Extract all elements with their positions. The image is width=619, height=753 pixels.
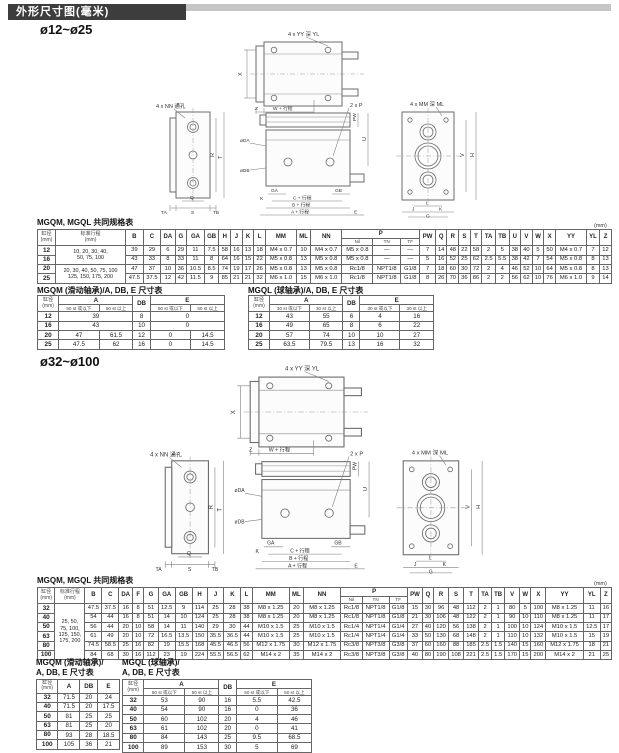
column-header: F — [133, 588, 144, 604]
table-cell: G1/4 — [389, 632, 407, 641]
table-cell: 0 — [150, 321, 224, 330]
table-cell: 10, 20, 30, 40, 50, 75, 100 — [56, 246, 126, 265]
table-cell: 2 — [482, 246, 496, 255]
dim-pw-label: PW — [352, 113, 358, 121]
table-cell: 124 — [192, 613, 207, 622]
table-cell: 48 — [447, 246, 459, 255]
table-cell: M10 x 1.5 — [546, 622, 583, 631]
table-cell: 42.5 — [277, 696, 311, 705]
dim-s-label: S — [188, 567, 192, 573]
table-cell: 10 — [133, 632, 144, 641]
table-cell: 11.5 — [187, 274, 205, 283]
column-header: 缸径 (mm) — [38, 230, 56, 246]
table-cell: 21 — [231, 274, 243, 283]
table-cell: 16 — [600, 604, 611, 613]
table-cell: 17 — [600, 622, 611, 631]
column-header: TB — [495, 230, 509, 246]
table-cell: 50 — [422, 632, 433, 641]
mm-holes-label: 4 x MM 深 ML — [412, 448, 449, 456]
dim-a-stroke-label: A + 行程 — [291, 209, 309, 216]
table-cell: M14 x 2 — [252, 650, 289, 659]
bore-range-small: ø12~ø25 — [40, 22, 92, 37]
table-cell: 25 — [289, 632, 303, 641]
table-cell: 5 — [495, 246, 509, 255]
table-cell: 9.5 — [236, 733, 277, 742]
table-cell: 8 — [586, 255, 599, 264]
table-cell: 18 — [583, 641, 600, 650]
table-cell: 38 — [509, 246, 521, 255]
dim-h-label: H — [476, 505, 482, 509]
table-cell: 16 — [435, 255, 447, 264]
dim-ga-label: GA — [267, 541, 275, 547]
table-cell: 13 — [296, 264, 310, 273]
dim-k-label: K — [256, 549, 260, 555]
ports-2xp-label: 2 x P — [350, 451, 363, 457]
table-cell: 6 — [161, 246, 175, 255]
table-cell: 40 — [521, 246, 533, 255]
table-cell: 32 — [123, 696, 144, 705]
table-cell: M4 x 0.7 — [555, 246, 586, 255]
table-cell: 52 — [521, 264, 533, 273]
end-view-drawing-large: 4 x MM 深 ML V H L J K G — [384, 448, 496, 574]
table-cell: 25 — [80, 721, 97, 730]
column-header: Q — [435, 230, 447, 246]
table-cell: 57 — [269, 331, 309, 340]
column-header: X — [544, 230, 556, 246]
table-cell: 100 — [123, 743, 144, 752]
column-header: E — [150, 296, 224, 305]
column-header: GA — [187, 230, 205, 246]
table-cell: M5 x 0.8 — [265, 264, 296, 273]
table-cell: 5 — [420, 255, 436, 264]
table-cell: 26 — [254, 264, 266, 273]
table-cell: 44 — [102, 622, 119, 631]
column-header: V — [521, 230, 533, 246]
table-cell: NPT1/8 — [373, 274, 401, 283]
column-header: R — [447, 230, 459, 246]
table-cell: 16 — [360, 340, 400, 349]
table-cell: 24 — [97, 693, 119, 702]
column-header: P — [341, 588, 408, 597]
dim-b-stroke-label: B + 行程 — [292, 202, 310, 209]
table-cell: 46 — [277, 715, 311, 724]
table-cell: 17 — [242, 264, 254, 273]
table-cell: 96 — [434, 604, 449, 613]
table-cell: 61.5 — [99, 331, 133, 340]
table-cell: 16 — [119, 604, 133, 613]
table-cell: 74 — [219, 264, 231, 273]
table-cell: 81 — [58, 721, 80, 730]
table-cell: 20, 30, 40, 50, 75, 100 125, 150, 175, 2… — [56, 264, 126, 283]
table-cell: 20 — [289, 604, 303, 613]
column-header: DB — [219, 680, 236, 696]
dim-g-label: G — [429, 569, 433, 575]
table-cell: 72 — [144, 632, 158, 641]
nn-holes-label: 4 x NN 通孔 — [156, 102, 186, 110]
table-cell: 160 — [434, 641, 449, 650]
table-cell: 13 — [296, 255, 310, 264]
table-cell: Rc1/8 — [342, 274, 373, 283]
table-cell: 15 — [583, 632, 600, 641]
table-cell: 16 — [133, 340, 150, 349]
table-cell: 170 — [505, 650, 520, 659]
table-cell: 1 — [492, 622, 505, 631]
table-cell: 30 — [289, 641, 303, 650]
column-header: ML — [296, 230, 310, 246]
table-cell: Rc1/8 — [341, 613, 362, 622]
table-cell: M6 x 1.0 — [265, 274, 296, 283]
column-header: 缸径 (mm) — [123, 680, 144, 696]
column-header: A — [58, 680, 80, 694]
dim-k-label: K — [443, 562, 447, 568]
column-header: 50 st 或以下 — [150, 305, 190, 312]
column-header: E — [360, 296, 434, 305]
column-header: E — [236, 680, 311, 689]
table-cell: NPT3/8 — [362, 650, 389, 659]
table-cell: 40 — [422, 622, 433, 631]
column-header: DA — [119, 588, 133, 604]
nn-holes-label: 4 x NN 通孔 — [150, 450, 182, 458]
table-cell: 5.5 — [236, 696, 277, 705]
column-header: NN — [303, 588, 340, 604]
column-header: S — [449, 588, 464, 604]
table-cell: 47 — [59, 331, 99, 340]
table-cell: 21 — [583, 650, 600, 659]
column-header: A — [144, 680, 219, 689]
table-cell: 56 — [449, 622, 464, 631]
column-header: DB — [133, 296, 150, 312]
table-cell: 80 — [123, 733, 144, 742]
dim-j-label: J — [414, 562, 417, 568]
table-cell: 32 — [37, 693, 58, 702]
column-header: TA — [482, 230, 496, 246]
table-cell: 160 — [531, 641, 546, 650]
table-cell: 11 — [187, 255, 205, 264]
table-cell: M14 x 2 — [546, 650, 583, 659]
table-cell: 38 — [241, 613, 252, 622]
table-cell: 58.5 — [102, 641, 119, 650]
table-cell: 88 — [449, 641, 464, 650]
table-cell: 43 — [126, 255, 144, 264]
table-cell: 20 — [119, 622, 133, 631]
table-cell: 20 — [97, 721, 119, 730]
table-cell: 15 — [296, 274, 310, 283]
table-cell: 20 — [119, 632, 133, 641]
table-cell: 22 — [459, 246, 471, 255]
table-cell: 90 — [185, 705, 219, 714]
table-cell: 20 — [38, 264, 56, 273]
table-cell: 17.5 — [97, 702, 119, 711]
ports-2xp-label: 2 x P — [350, 103, 363, 109]
table-cell: 12 — [600, 246, 612, 255]
column-header: 缸径 (mm) — [38, 296, 59, 312]
table-cell: M12 x 1.75 — [303, 641, 340, 650]
table-cell: 13 — [600, 264, 612, 273]
common-spec-table-small: 缸径 (mm)标准行程 (mm)BCDAGGAGBHJKLMMMLNNPPWQR… — [37, 229, 612, 284]
column-header: YL — [583, 588, 600, 604]
dim-g-label: G — [426, 214, 430, 220]
column-header: 50 st 以上 — [277, 689, 311, 696]
table-cell: 1.5 — [492, 641, 505, 650]
common-table-small-title: MGQM, MGQL 共同规格表 — [37, 218, 133, 228]
table-cell: 47.5 — [126, 274, 144, 283]
dim-pw-label: PW — [352, 462, 358, 470]
table-cell: 5.5 — [495, 255, 509, 264]
table-cell: 35.5 — [207, 632, 224, 641]
table-cell: 8 — [343, 321, 360, 330]
table-cell: 108 — [449, 650, 464, 659]
table-cell: 8 — [133, 312, 150, 321]
table-cell: 16 — [38, 321, 59, 330]
table-cell: 37 — [407, 641, 422, 650]
table-cell: 10 — [532, 274, 544, 283]
dim-s-label: S — [191, 210, 194, 216]
table-cell: 10 — [133, 321, 150, 330]
dim-ta-label: TA — [156, 567, 163, 573]
table-cell: 16 — [133, 641, 144, 650]
table-cell: 64 — [544, 264, 556, 273]
table-cell: 10 — [520, 632, 531, 641]
dim-h-label: H — [470, 153, 476, 157]
table-cell: 148 — [464, 632, 479, 641]
table-cell: 20 — [38, 331, 59, 340]
table-cell: 18 — [435, 264, 447, 273]
table-cell: 0 — [150, 331, 190, 340]
table-cell: 54 — [85, 613, 102, 622]
table-cell: 20 — [219, 715, 236, 724]
table-cell: 18.5 — [97, 730, 119, 739]
table-cell: 12 — [249, 312, 270, 321]
table-cell: 81 — [58, 712, 80, 721]
table-cell: M5 x 0.8 — [311, 264, 342, 273]
yy-holes-label: 4 x YY 深 YL — [288, 30, 319, 38]
table-cell: 60 — [422, 641, 433, 650]
table-cell: — — [401, 255, 420, 264]
bore-range-large: ø32~ø100 — [40, 354, 100, 369]
table-cell: 14 — [435, 246, 447, 255]
table-cell: 1 — [492, 613, 505, 622]
table-cell: 18 — [254, 246, 266, 255]
table-cell: G1/8 — [389, 613, 407, 622]
table-cell: M5 x 0.8 — [555, 255, 586, 264]
common-table-large-title: MGQM, MGQL 共同规格表 — [37, 576, 133, 586]
table-cell: M4 x 0.7 — [311, 246, 342, 255]
column-header: B — [85, 588, 102, 604]
table-cell: M10 x 1.5 — [303, 632, 340, 641]
column-header: 50 st 以上 — [185, 689, 219, 696]
table-cell: M10 x 1.5 — [546, 632, 583, 641]
column-header: B — [126, 230, 144, 246]
side-view-drawing-large: 4 x NN 通孔 R T Q TA S TB — [150, 450, 228, 571]
mgqm-small-table: 缸径 (mm)ADBE50 st 或以下50 st 以上50 st 或以下50 … — [37, 295, 225, 350]
dim-ta-label: TA — [161, 210, 168, 216]
table-cell: 0 — [150, 340, 190, 349]
table-cell: G1/8 — [401, 274, 420, 283]
table-cell: 36.5 — [224, 632, 241, 641]
table-cell: 51 — [144, 604, 158, 613]
column-header: V — [505, 588, 520, 604]
table-cell: 21 — [600, 641, 611, 650]
dim-t-label: T — [217, 508, 223, 512]
table-cell: 42 — [175, 274, 187, 283]
table-cell: 19 — [600, 632, 611, 641]
table-cell: 11 — [187, 246, 205, 255]
title-band-extension — [186, 4, 611, 11]
table-cell: 84 — [144, 733, 185, 742]
table-cell: 33 — [175, 255, 187, 264]
table-cell: 63 — [38, 632, 55, 641]
table-cell: 10 — [520, 622, 531, 631]
column-header: G — [144, 588, 158, 604]
table-cell: 4 — [495, 264, 509, 273]
table-cell: 10 — [161, 264, 175, 273]
table-cell: M8 x 1.25 — [303, 604, 340, 613]
column-header: DB — [343, 296, 360, 312]
dim-c-stroke-label: C + 行程 — [293, 195, 312, 202]
column-header: K — [224, 588, 241, 604]
column-header: PW — [420, 230, 436, 246]
table-cell: 2.5 — [479, 650, 492, 659]
table-cell: 7 — [586, 246, 599, 255]
table-cell: 14.5 — [191, 331, 225, 340]
column-header: TF — [389, 596, 407, 603]
table-cell: M5 x 0.8 — [555, 264, 586, 273]
table-cell: 150 — [192, 632, 207, 641]
dim-u-label: U — [363, 487, 369, 491]
table-cell: Rc1/4 — [341, 632, 362, 641]
column-header: GB — [204, 230, 219, 246]
table-cell: 14 — [158, 613, 175, 622]
table-cell: 21 — [97, 740, 119, 749]
column-header: 50 st 或以下 — [59, 305, 99, 312]
column-header: 30 st 以上 — [309, 305, 342, 312]
table-cell: 16 — [219, 705, 236, 714]
table-cell: M12 x 1.75 — [546, 641, 583, 650]
table-cell: 93 — [58, 730, 80, 739]
column-header: W — [520, 588, 531, 604]
column-header: Nil — [342, 238, 373, 245]
table-cell: 33 — [407, 632, 422, 641]
table-cell: 38 — [241, 604, 252, 613]
table-cell: 8 — [420, 274, 436, 283]
column-header: C — [143, 230, 161, 246]
dim-j-label: J — [412, 207, 415, 213]
dim-r-label: R — [209, 504, 215, 509]
front-view-drawing-large: 2 x P øDA øDB PW U GA GB K C + 行程 B + 行程… — [232, 448, 380, 572]
column-header: 缸径 (mm) — [37, 680, 58, 694]
table-cell: 50 — [38, 622, 55, 631]
column-header: H — [192, 588, 207, 604]
column-header: 缸径 (mm) — [38, 588, 55, 604]
table-cell: 49 — [102, 632, 119, 641]
table-cell: 17 — [600, 613, 611, 622]
table-cell: 16 — [219, 696, 236, 705]
table-cell: 16 — [400, 312, 434, 321]
column-header: 标准行程 (mm) — [55, 588, 85, 604]
table-cell: M8 x 1.25 — [546, 604, 583, 613]
table-cell: 36 — [175, 264, 187, 273]
table-cell: 90 — [505, 613, 520, 622]
table-cell: 10 — [296, 246, 310, 255]
table-cell: Rc3/8 — [341, 641, 362, 650]
table-cell: M6 x 1.0 — [555, 274, 586, 283]
table-cell: 29 — [207, 622, 224, 631]
table-cell: 2.5 — [479, 641, 492, 650]
table-cell: M5 x 0.8 — [265, 255, 296, 264]
table-cell: 90 — [185, 696, 219, 705]
table-cell: 25 — [289, 622, 303, 631]
table-cell: 37.5 — [143, 274, 161, 283]
table-cell: 35 — [289, 650, 303, 659]
dim-da-label: øDA — [240, 138, 250, 144]
dim-tb-label: TB — [213, 210, 219, 216]
table-cell: 13.5 — [175, 632, 192, 641]
table-cell: 106 — [434, 613, 449, 622]
table-cell: 27 — [407, 622, 422, 631]
table-cell: 190 — [434, 650, 449, 659]
table-cell: 39 — [59, 312, 133, 321]
column-header: GB — [175, 588, 192, 604]
column-header: NN — [311, 230, 342, 246]
table-cell: NPT1/8 — [362, 604, 389, 613]
column-header: A — [59, 296, 133, 305]
end-view-geometry — [396, 107, 476, 217]
table-cell: 32 — [400, 340, 434, 349]
table-cell: 62 — [521, 274, 533, 283]
table-cell: 22 — [254, 255, 266, 264]
table-cell: 61 — [85, 632, 102, 641]
mgqm-large-table: 缸径 (mm)ADBE3271.520244071.52017.55081252… — [36, 679, 120, 750]
table-cell: M5 x 0.8 — [342, 246, 373, 255]
table-cell: 30 — [422, 613, 433, 622]
table-cell: Rc3/8 — [341, 650, 362, 659]
table-cell: 0 — [150, 312, 224, 321]
table-cell: 63 — [123, 724, 144, 733]
table-cell: 102 — [185, 724, 219, 733]
dim-e-label: E — [354, 563, 358, 569]
column-header: Q — [422, 588, 433, 604]
table-cell: 221 — [464, 650, 479, 659]
table-cell: 2.5 — [482, 255, 496, 264]
table-cell: 20 — [80, 693, 97, 702]
column-header: L — [241, 588, 252, 604]
table-cell: 6 — [343, 312, 360, 321]
side-view-drawing-small: 4 x NN 通孔 R T Q TA S TB — [156, 102, 228, 214]
table-cell: 63 — [37, 721, 58, 730]
table-cell: 79.5 — [309, 340, 342, 349]
table-cell: 12 — [161, 274, 175, 283]
table-cell: 20 — [249, 331, 270, 340]
dim-v-label: V — [460, 153, 466, 157]
mm-holes-label: 4 x MM 深 ML — [410, 100, 444, 108]
table-cell: 8.5 — [204, 264, 219, 273]
mgqm-large-table-title: MGQM (滑动轴承)/ A, DB, E 尺寸表 — [36, 658, 104, 677]
table-cell: 10 — [520, 613, 531, 622]
column-header: 50 st 以上 — [191, 305, 225, 312]
table-cell: 14.5 — [191, 340, 225, 349]
table-cell: 105 — [58, 740, 80, 749]
column-header: TN — [362, 596, 389, 603]
table-cell: 20 — [289, 613, 303, 622]
table-cell: 153 — [185, 743, 219, 752]
table-cell: 63.5 — [269, 340, 309, 349]
dim-r-label: R — [210, 153, 216, 157]
column-header: MM — [265, 230, 296, 246]
table-cell: M8 x 1.25 — [252, 604, 289, 613]
table-cell: 70 — [447, 274, 459, 283]
table-cell: 40 — [407, 650, 422, 659]
column-header: X — [531, 588, 546, 604]
